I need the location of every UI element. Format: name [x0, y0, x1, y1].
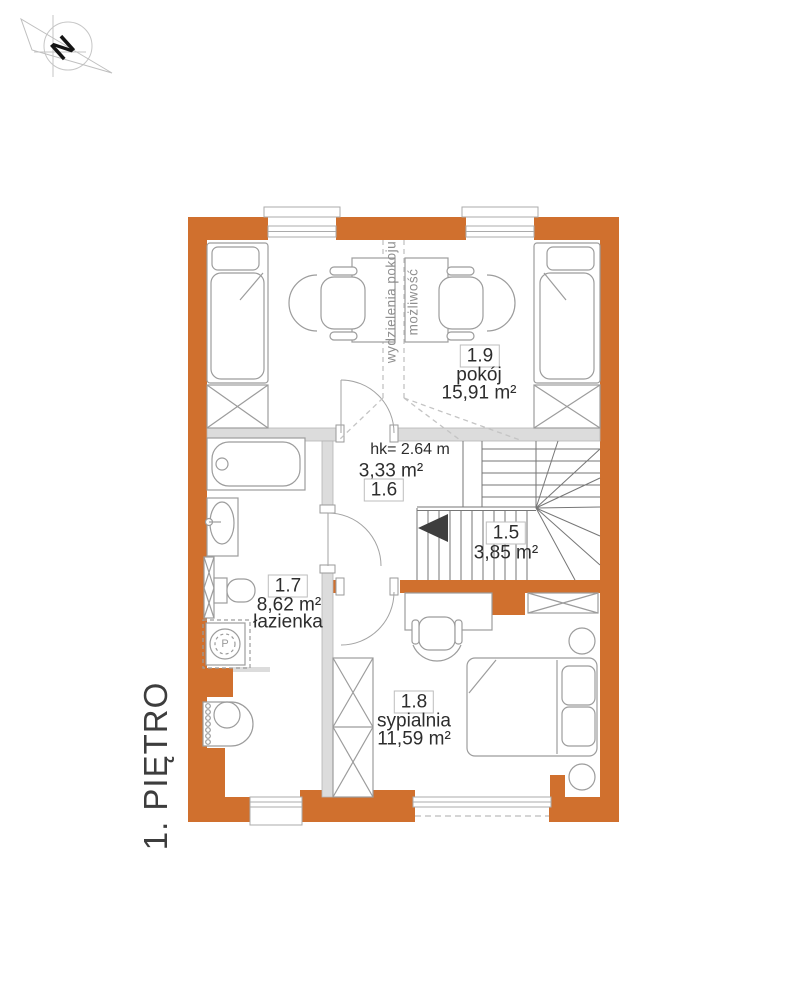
wall-top-3: [534, 217, 619, 240]
door-hall-to-bedroom: [336, 578, 398, 645]
single-bed-left: [207, 243, 268, 383]
partition-note-right: możliwość: [406, 269, 421, 336]
washer-label: P: [221, 638, 228, 650]
room19-area: 15,91 m²: [442, 384, 517, 403]
office-chair-left: [289, 267, 365, 340]
wall-room19-right: [396, 428, 600, 441]
wall-stair-band: [400, 580, 600, 593]
bathtub: [207, 438, 305, 490]
single-bed-right: [534, 243, 600, 383]
office-chair-right: [439, 267, 515, 340]
bathroom-name: łazienka: [253, 613, 323, 632]
page-title: 1. PIĘTRO: [137, 682, 175, 851]
wall-bathroom-lower: [322, 568, 333, 797]
door-bathroom: [320, 505, 381, 573]
wall-top-2: [336, 217, 466, 240]
door-hall-to-room19: [336, 380, 398, 442]
wardrobe-right: [534, 385, 600, 428]
window-top-left: [264, 207, 340, 237]
hall-height-note: hk= 2.64 m: [370, 442, 450, 458]
wall-bottom-1: [188, 797, 252, 822]
sink: [206, 498, 239, 556]
bedroom-area: 11,59 m²: [377, 730, 451, 749]
floor-plan-page: N 1. PIĘTRO wydzielenia pokoju możliwość…: [0, 0, 800, 1000]
wardrobe-top-right: [528, 593, 598, 613]
wall-bottom-3: [549, 797, 619, 822]
partition-note-left: wydzielenia pokoju: [384, 241, 399, 363]
wall-right: [600, 217, 619, 822]
wall-bathroom-upper: [322, 441, 333, 512]
window-top-right: [462, 207, 538, 237]
double-bed: [467, 658, 597, 756]
boiler: [203, 702, 253, 746]
toilet: [214, 578, 255, 603]
wall-top-1: [188, 217, 268, 240]
wall-stub-bottom-right: [550, 775, 565, 797]
window-bottom-small: [250, 797, 302, 825]
wall-stub-bottom-left: [207, 748, 225, 797]
bedroom-furniture: [333, 593, 598, 797]
stairs-area: 3,85 m²: [474, 544, 538, 563]
wardrobe-bedroom: [333, 658, 373, 797]
stair-direction-arrow-icon: [418, 514, 448, 542]
towel-radiator: [204, 557, 214, 618]
stairs-number: 1.5: [486, 522, 526, 545]
nightstand-bottom: [569, 764, 595, 790]
wall-chimney-stub: [492, 593, 525, 615]
window-bottom-large: [413, 797, 551, 816]
hall-number: 1.6: [364, 479, 404, 502]
chair-bedroom: [412, 617, 462, 661]
nightstand-top: [569, 628, 595, 654]
wardrobe-left: [207, 385, 268, 428]
wall-stub-bathroom: [207, 668, 233, 697]
